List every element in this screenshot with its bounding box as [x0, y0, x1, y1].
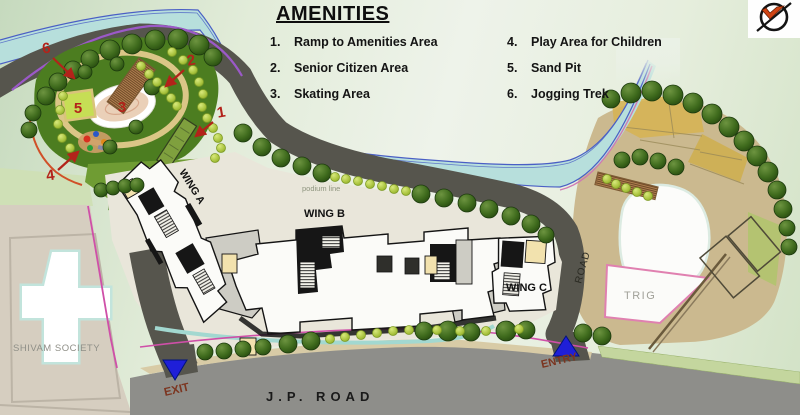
bush-icon: [354, 177, 363, 186]
legend: AMENITIES 1. Ramp to Amenities Area 2. S…: [262, 3, 702, 35]
tree-icon: [253, 138, 271, 156]
bush-icon: [515, 325, 524, 334]
legend-title: AMENITIES: [276, 3, 702, 26]
bush-icon: [203, 114, 212, 123]
tree-icon: [768, 181, 786, 199]
tree-icon: [78, 65, 92, 79]
bush-icon: [456, 327, 465, 336]
bush-icon: [433, 326, 442, 335]
bush-icon: [405, 326, 414, 335]
bush-icon: [58, 134, 67, 143]
bush-icon: [56, 106, 65, 115]
tree-icon: [103, 140, 117, 154]
tree-icon: [574, 324, 592, 342]
bush-icon: [145, 70, 154, 79]
bush-icon: [199, 90, 208, 99]
tree-icon: [538, 227, 554, 243]
bush-icon: [160, 86, 169, 95]
tree-icon: [412, 185, 430, 203]
tree-icon: [632, 149, 648, 165]
tree-icon: [21, 122, 37, 138]
tree-icon: [435, 189, 453, 207]
tree-icon: [781, 239, 797, 255]
tree-icon: [49, 73, 67, 91]
bush-icon: [54, 120, 63, 129]
tree-icon: [668, 159, 684, 175]
tree-icon: [779, 220, 795, 236]
legend-item-4: 4. Play Area for Children: [507, 35, 702, 49]
bush-icon: [66, 144, 75, 153]
tree-icon: [145, 30, 165, 50]
tree-icon: [522, 215, 540, 233]
bush-icon: [331, 173, 340, 182]
legend-item-6: 6. Jogging Trek: [507, 87, 702, 101]
tree-icon: [216, 343, 232, 359]
bush-icon: [390, 185, 399, 194]
bush-icon: [173, 102, 182, 111]
tree-icon: [122, 34, 142, 54]
bush-icon: [482, 327, 491, 336]
bush-icon: [198, 103, 207, 112]
legend-item-3: 3. Skating Area: [270, 87, 495, 101]
marker-5: 5: [74, 100, 82, 117]
legend-item-5: 5. Sand Pit: [507, 61, 702, 75]
tree-icon: [168, 29, 188, 49]
tree-icon: [197, 344, 213, 360]
tree-icon: [458, 194, 476, 212]
bush-icon: [633, 188, 642, 197]
bush-icon: [402, 187, 411, 196]
tree-icon: [204, 48, 222, 66]
tree-icon: [302, 332, 320, 350]
wing-b-label: WING B: [304, 208, 345, 220]
trig-label: TRIG: [624, 290, 656, 302]
tree-icon: [130, 178, 144, 192]
bush-icon: [612, 180, 621, 189]
tree-icon: [255, 339, 271, 355]
bush-icon: [168, 48, 177, 57]
tree-icon: [293, 157, 311, 175]
bush-icon: [644, 192, 653, 201]
tree-icon: [502, 207, 520, 225]
tree-icon: [480, 200, 498, 218]
legend-item-2: 2. Senior Citizen Area: [270, 61, 495, 75]
legend-item-1: 1. Ramp to Amenities Area: [270, 35, 495, 49]
jp-road-label: J.P. ROAD: [266, 389, 374, 404]
bush-icon: [357, 331, 366, 340]
tree-icon: [235, 341, 251, 357]
tree-icon: [415, 322, 433, 340]
bush-icon: [153, 78, 162, 87]
marker-3: 3: [118, 99, 126, 116]
bush-icon: [211, 154, 220, 163]
tree-icon: [650, 153, 666, 169]
bush-icon: [603, 175, 612, 184]
bush-icon: [195, 78, 204, 87]
bush-icon: [389, 327, 398, 336]
tree-icon: [614, 152, 630, 168]
bush-icon: [622, 184, 631, 193]
podium-line-label: podium line: [302, 184, 340, 193]
compass-arrow-logo: [748, 0, 800, 38]
legend-left-column: 1. Ramp to Amenities Area 2. Senior Citi…: [270, 35, 495, 113]
bush-icon: [167, 94, 176, 103]
shivam-society-label: SHIVAM SOCIETY: [13, 343, 100, 354]
wing-c-label: WING C: [506, 282, 547, 294]
bush-icon: [217, 144, 226, 153]
tree-icon: [496, 321, 516, 341]
tree-icon: [129, 120, 143, 134]
tree-icon: [37, 87, 55, 105]
bush-icon: [214, 134, 223, 143]
bush-icon: [342, 175, 351, 184]
bush-icon: [366, 180, 375, 189]
tree-icon: [25, 105, 41, 121]
bush-icon: [341, 333, 350, 342]
bush-icon: [59, 92, 68, 101]
tree-icon: [279, 335, 297, 353]
tree-icon: [593, 327, 611, 345]
tree-icon: [702, 104, 722, 124]
tree-icon: [110, 57, 124, 71]
bush-icon: [378, 182, 387, 191]
marker-1: 1: [216, 103, 227, 121]
tree-icon: [272, 149, 290, 167]
site-plan: 6 2 1 4 3 5 WING A WING B WING C podium …: [0, 0, 800, 415]
bush-icon: [137, 62, 146, 71]
tree-icon: [719, 117, 739, 137]
tree-icon: [758, 162, 778, 182]
tree-icon: [774, 200, 792, 218]
bush-icon: [373, 329, 382, 338]
tree-icon: [234, 124, 252, 142]
tree-icon: [313, 164, 331, 182]
bush-icon: [326, 335, 335, 344]
legend-right-column: 4. Play Area for Children 5. Sand Pit 6.…: [507, 35, 702, 113]
